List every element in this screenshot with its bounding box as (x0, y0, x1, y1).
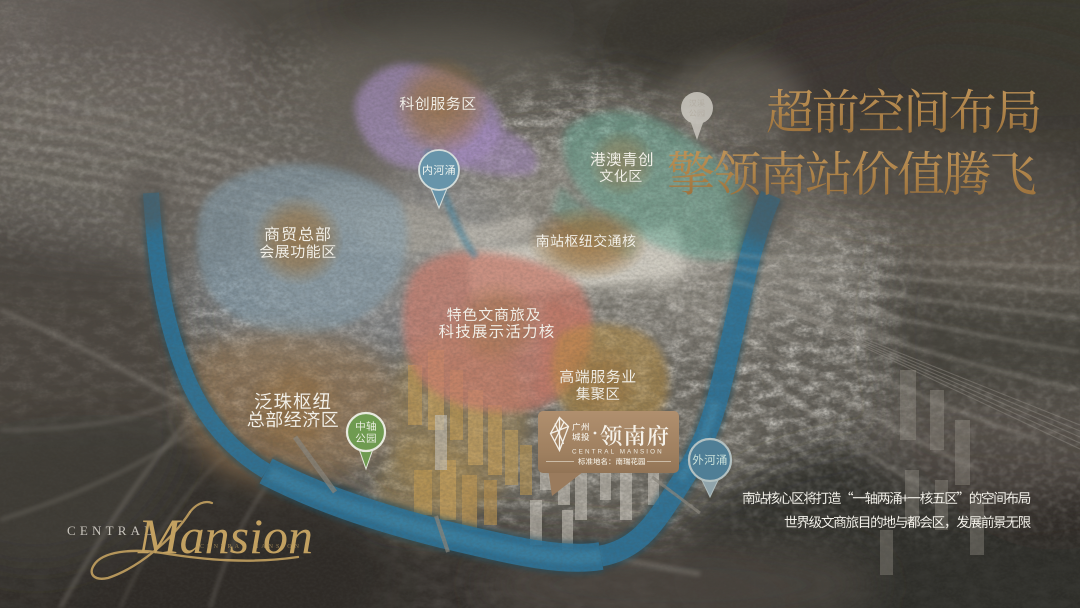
svg-text:CENTRAL MANSION: CENTRAL MANSION (572, 449, 664, 456)
svg-text:Mansion: Mansion (137, 508, 313, 564)
svg-text:CENTRAL MANSION: CENTRAL MANSION (200, 544, 302, 550)
